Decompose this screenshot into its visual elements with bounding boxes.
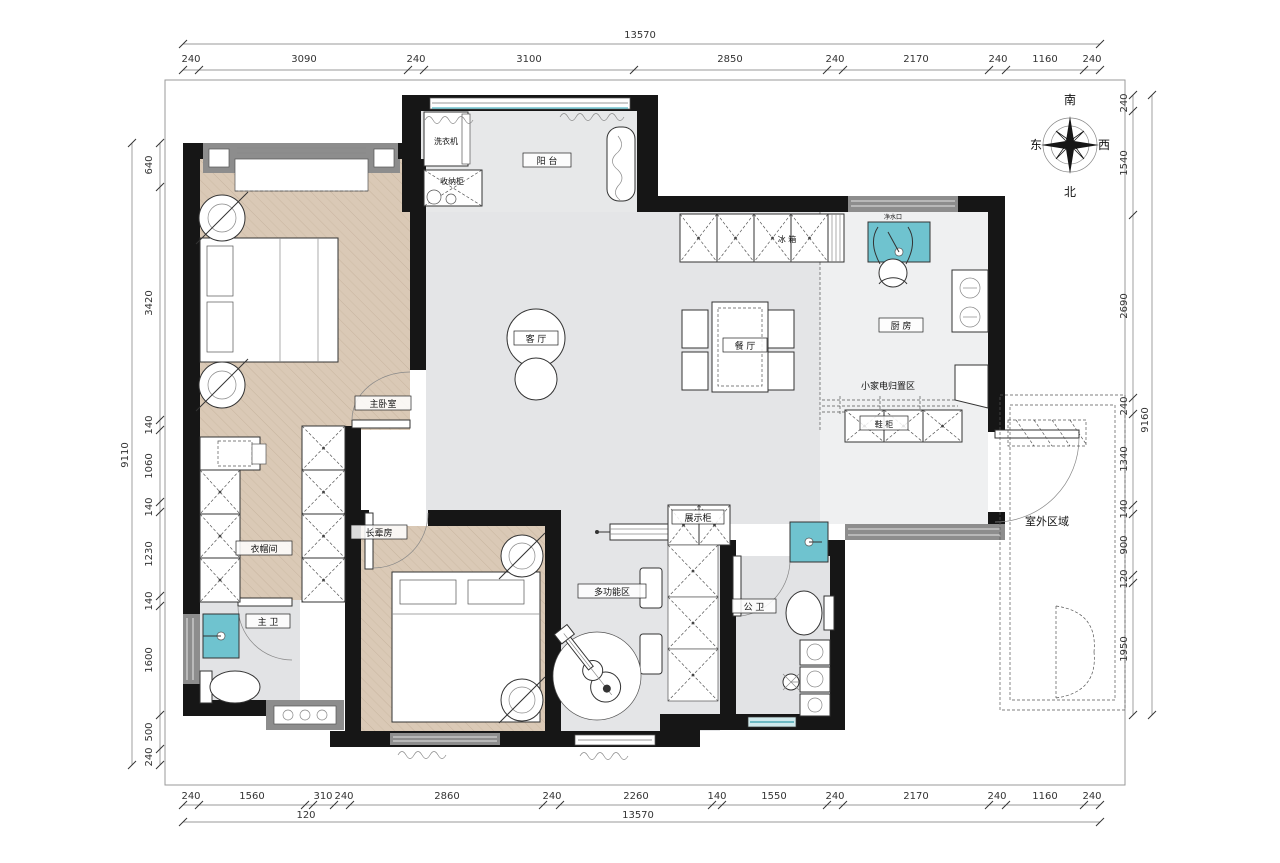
dim: 240 <box>1082 54 1101 65</box>
dim: 1160 <box>1032 791 1057 802</box>
multi-function-label: 多功能区 <box>594 586 630 598</box>
dim-left-total: 9110 <box>120 442 131 467</box>
cabinet-xcell <box>923 410 962 442</box>
dim: 140 <box>1119 499 1130 518</box>
bay-window-sill <box>235 159 368 191</box>
dim: 1550 <box>761 791 786 802</box>
compass-east: 东 <box>1030 138 1042 152</box>
cabinet-xcell <box>302 470 345 514</box>
outdoor-area-label: 室外区域 <box>1025 514 1069 528</box>
entry-door <box>995 430 1079 522</box>
floor-plan: 南 东 西 北 洗衣机 收纳柜 阳 台 客 厅 餐 厅 厨 房 冰 箱 净水口 … <box>0 0 1280 863</box>
floor-entry <box>820 432 988 524</box>
stove <box>952 270 988 332</box>
entry-sill <box>955 365 988 408</box>
dim: 3100 <box>516 54 541 65</box>
dim: 240 <box>542 791 561 802</box>
dining-room-label: 餐 厅 <box>735 340 756 352</box>
dim: 310 <box>313 791 332 802</box>
dim: 140 <box>707 791 726 802</box>
cabinet-xcell <box>668 545 718 597</box>
dim: 240 <box>825 791 844 802</box>
master-bedroom-label: 主卧室 <box>369 398 396 410</box>
compass-west: 西 <box>1098 138 1110 152</box>
dim: 240 <box>334 791 353 802</box>
dim: 1950 <box>1119 636 1130 661</box>
cabinet-end-strip <box>828 214 844 262</box>
dim: 140 <box>144 497 155 516</box>
dim: 1560 <box>239 791 264 802</box>
dim: 240 <box>1119 396 1130 415</box>
dim: 1540 <box>1119 150 1130 175</box>
fridge-label: 冰 箱 <box>778 234 797 244</box>
dim: 140 <box>144 591 155 610</box>
dim: 240 <box>181 54 200 65</box>
dim: 3420 <box>144 290 155 315</box>
dim: 120 <box>1119 569 1130 588</box>
dim: 240 <box>181 791 200 802</box>
public-bath-toilet <box>786 591 834 635</box>
round-table-small <box>515 358 557 400</box>
master-bath-sink <box>203 614 239 658</box>
dim: 2170 <box>903 54 928 65</box>
elder-room-label: 长辈房 <box>365 527 392 539</box>
drying-rack <box>607 127 635 201</box>
dim-top-total: 13570 <box>624 30 656 41</box>
cabinet-xcell <box>791 214 828 262</box>
dim: 2860 <box>434 791 459 802</box>
dim: 2850 <box>717 54 742 65</box>
cabinet-xcell <box>302 558 345 602</box>
dim: 240 <box>1119 93 1130 112</box>
dim: 900 <box>1119 535 1130 554</box>
balcony-label: 阳 台 <box>537 155 558 167</box>
dim: 240 <box>825 54 844 65</box>
dim-bottom-extra: 120 <box>296 810 315 821</box>
storage-cabinet <box>424 170 482 206</box>
dim: 140 <box>144 415 155 434</box>
dim: 1060 <box>144 453 155 478</box>
dim: 240 <box>406 54 425 65</box>
dim: 2260 <box>623 791 648 802</box>
water-point-label: 净水口 <box>884 213 902 221</box>
dim: 640 <box>144 155 155 174</box>
dim: 240 <box>144 747 155 766</box>
dim: 240 <box>1082 791 1101 802</box>
dim: 240 <box>987 791 1006 802</box>
cloakroom-desk <box>200 437 266 470</box>
dim: 1600 <box>144 647 155 672</box>
small-appliance-label: 小家电归置区 <box>861 380 915 392</box>
dim: 240 <box>988 54 1007 65</box>
dim: 1160 <box>1032 54 1057 65</box>
cabinet-xcell <box>200 514 240 558</box>
washing-machine-label: 洗衣机 <box>434 136 458 146</box>
dim: 1340 <box>1119 446 1130 471</box>
living-room-label: 客 厅 <box>526 333 547 345</box>
compass-north: 北 <box>1064 185 1076 199</box>
dim: 2170 <box>903 791 928 802</box>
dim: 3090 <box>291 54 316 65</box>
cabinet-xcell <box>200 470 240 514</box>
cabinet-xcell <box>302 426 345 470</box>
cloakroom-label: 衣帽间 <box>250 543 277 555</box>
dim: 1230 <box>144 541 155 566</box>
cabinet-xcell <box>302 514 345 558</box>
stool <box>640 634 662 674</box>
cabinet-xcell <box>668 597 718 649</box>
curtain-icon <box>580 753 628 760</box>
kitchen-label: 厨 房 <box>891 320 912 332</box>
dim: 2690 <box>1119 293 1130 318</box>
cabinet-xcell <box>668 649 718 701</box>
compass-south: 南 <box>1064 92 1076 107</box>
curtain-icon <box>398 752 446 759</box>
public-bath-label: 公 卫 <box>744 602 765 613</box>
public-bath-sink <box>790 522 828 562</box>
display-cabinet-label: 展示柜 <box>684 512 711 524</box>
dim-bottom-total: 13570 <box>622 810 654 821</box>
master-bath-label: 主 卫 <box>258 616 279 628</box>
dim-right-total: 9160 <box>1140 407 1151 432</box>
dim: 500 <box>144 722 155 741</box>
cabinet-xcell <box>200 558 240 602</box>
master-bed <box>200 238 338 362</box>
storage-cabinet-label: 收纳柜 <box>440 176 464 186</box>
outdoor-area <box>1000 395 1125 710</box>
master-bath-toilet <box>200 671 260 703</box>
compass-rose: 南 东 西 北 <box>1030 92 1110 199</box>
cabinet-xcell <box>680 214 717 262</box>
shoe-cabinet-label: 鞋 柜 <box>875 419 894 429</box>
cabinet-xcell <box>717 214 754 262</box>
washer-column <box>800 640 830 716</box>
